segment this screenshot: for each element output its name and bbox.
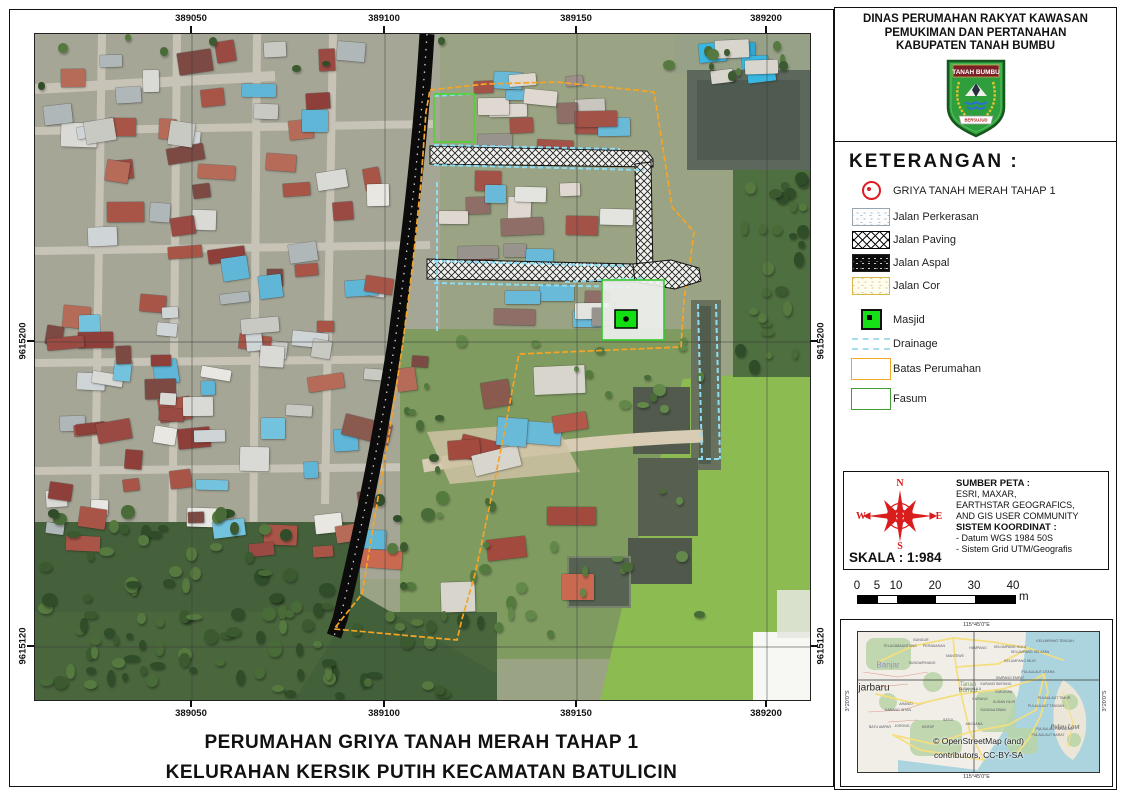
legend-item-aspal: Jalan Aspal — [849, 254, 1106, 272]
inset-place-label: MANTEWE — [946, 654, 964, 658]
inset-place-label: TELAGABAUNTUNG — [883, 644, 916, 648]
grid-tick — [575, 700, 577, 707]
legend: KETERANGAN : GRIYA TANAH MERAH TAHAP 1 J… — [835, 142, 1116, 410]
asphalt-road — [334, 34, 427, 636]
inset-place-label: KELUMPANG SELATAN — [1011, 650, 1049, 654]
masjid-marker — [615, 310, 637, 328]
legend-item-cor: Jalan Cor — [849, 277, 1106, 295]
legend-item-perkerasan: Jalan Perkerasan — [849, 208, 1106, 226]
inset-place-label: PULAULAUT UTARA — [1021, 670, 1054, 674]
inset-place-label: KUSAN HILIR — [993, 700, 1015, 704]
easting-label-top: 389100 — [368, 13, 400, 24]
aspal-swatch-icon — [852, 254, 890, 272]
legend-label: Fasum — [893, 393, 927, 405]
inset-place-label: KELUMPANG TENGAH — [1036, 639, 1073, 643]
scalebar-tick: 10 — [890, 580, 903, 592]
inset-place-label: BUNGUR — [913, 638, 928, 642]
perkerasan-swatch-icon — [852, 208, 890, 226]
easting-label-bottom: 389100 — [368, 708, 400, 719]
cor-swatch-icon — [852, 277, 890, 295]
easting-label-top: 389050 — [175, 13, 207, 24]
agency-title-line2: PEMUKIMAN DAN PERTANAHAN — [835, 27, 1116, 41]
legend-item-batas: Batas Perumahan — [849, 358, 1106, 380]
tanah-bumbu-logo: TANAH BUMBU BERSUJUD — [944, 56, 1008, 138]
koordinat-line: - Sistem Grid UTM/Geografis — [956, 544, 1106, 555]
sistem-koordinat-title: SISTEM KOORDINAT : — [956, 522, 1106, 533]
grid-tick — [27, 645, 34, 647]
map-layout-sheet: 389050 389100 389150 389200 389050 38910… — [0, 0, 1123, 793]
inset-place-label: JORONG — [895, 724, 910, 728]
legend-item-fasum: Fasum — [849, 388, 1106, 410]
sumber-line: EARTHSTAR GEOGRAFICS, — [956, 500, 1106, 511]
scalebar-tick: 30 — [968, 580, 981, 592]
inset-place-label: ARANIO — [899, 702, 912, 706]
grid-tick — [27, 340, 34, 342]
red-point-icon — [862, 181, 881, 200]
easting-label-top: 389150 — [560, 13, 592, 24]
compass-rose-icon: N S W E — [854, 476, 946, 550]
batas-swatch-icon — [851, 358, 891, 380]
map-overlay-features — [35, 34, 810, 700]
inset-place-label: SATUI — [943, 718, 953, 722]
legend-label: Jalan Perkerasan — [893, 211, 979, 223]
svg-text:BERSUJUD: BERSUJUD — [964, 117, 987, 122]
inset-place-label: KARANG INTAN — [885, 708, 911, 712]
inset-place-label: SUNGAIPINANG — [909, 661, 936, 665]
inset-place-label: BATU AMPAR — [869, 725, 891, 729]
inset-place-label: PULAULAUT TENGAH — [1028, 704, 1064, 708]
info-panel: DINAS PERUMAHAN RAKYAT KAWASAN PEMUKIMAN… — [834, 7, 1117, 790]
grid-tick — [190, 26, 192, 33]
drainage-swatch-icon — [852, 338, 890, 350]
northing-label-right: 9615120 — [816, 628, 827, 665]
grid-tick — [765, 26, 767, 33]
legend-label: Jalan Cor — [893, 280, 940, 292]
grid-tick — [575, 26, 577, 33]
legend-label: Jalan Aspal — [893, 257, 949, 269]
fasum-outlines — [434, 94, 664, 340]
svg-text:TANAH BUMBU: TANAH BUMBU — [952, 69, 1000, 76]
map-title-line2: KELURAHAN KERSIK PUTIH KECAMATAN BATULIC… — [10, 762, 833, 784]
legend-label: Jalan Paving — [893, 234, 956, 246]
grid-tick — [383, 700, 385, 707]
agency-title-line3: KABUPATEN TANAH BUMBU — [835, 40, 1116, 54]
svg-text:S: S — [897, 541, 903, 550]
source-info-box: N S W E — [843, 471, 1109, 570]
legend-item-masjid: Masjid — [849, 309, 1106, 330]
inset-place-label: SUNGAILOBAN — [980, 708, 1005, 712]
inset-place-label: PULAULAUT BARAT — [1032, 733, 1065, 737]
sumber-peta-title: SUMBER PETA : — [956, 478, 1106, 489]
grid-tick — [190, 700, 192, 707]
legend-label: Drainage — [893, 338, 938, 350]
koordinat-line: - Datum WGS 1984 50S — [956, 533, 1106, 544]
inset-place-label: SIMPANG EMPAT — [996, 676, 1024, 680]
legend-item-griya: GRIYA TANAH MERAH TAHAP 1 — [849, 181, 1106, 200]
map-sheet-panel: 389050 389100 389150 389200 389050 38910… — [9, 9, 834, 787]
grid-tick — [810, 340, 817, 342]
inset-coord-left: 3°20'0"S — [845, 690, 851, 711]
paving-swatch-icon — [852, 231, 890, 249]
scalebar-tick: 40 — [1007, 580, 1020, 592]
agency-header: DINAS PERUMAHAN RAKYAT KAWASAN PEMUKIMAN… — [835, 8, 1116, 142]
legend-item-paving: Jalan Paving — [849, 231, 1106, 249]
svg-text:E: E — [936, 511, 943, 522]
scalebar: 0 5 10 20 30 40 m — [857, 580, 1107, 612]
inset-place-label: PERAMASAN — [923, 644, 945, 648]
inset-place-label: Banjar — [876, 661, 899, 670]
grid-tick — [765, 700, 767, 707]
legend-item-drainage: Drainage — [849, 338, 1106, 350]
svg-text:N: N — [896, 478, 904, 489]
inset-place-label: KELUMPANG HULU — [994, 645, 1026, 649]
northing-label-right: 9615200 — [816, 323, 827, 360]
scalebar-tick: 20 — [929, 580, 942, 592]
masjid-swatch-icon — [861, 309, 882, 330]
map-title-line1: PERUMAHAN GRIYA TANAH MERAH TAHAP 1 — [10, 732, 833, 754]
legend-title: KETERANGAN : — [849, 151, 1106, 173]
inset-place-label: KUSAN HULU — [959, 687, 982, 691]
grid-tick — [383, 26, 385, 33]
legend-label: Masjid — [893, 314, 925, 326]
inset-locator-box: 115°45'0"E 115°45'0"E 3°20'0"S 3°20'0"S — [840, 619, 1113, 787]
sumber-line: ESRI, MAXAR, — [956, 489, 1106, 500]
inset-place-label: KARANG BINTANG — [980, 682, 1011, 686]
inset-coord-right: 3°20'0"S — [1102, 690, 1108, 711]
inset-coord-top: 115°45'0"E — [963, 622, 990, 628]
aerial-map — [34, 33, 811, 701]
grid-tick — [810, 645, 817, 647]
inset-place-label: KINTAP — [922, 725, 934, 729]
easting-label-bottom: 389050 — [175, 708, 207, 719]
easting-label-bottom: 389150 — [560, 708, 592, 719]
scale-text: SKALA : 1:984 — [849, 550, 942, 565]
easting-label-top: 389200 — [750, 13, 782, 24]
inset-place-label: PULAULAUT SELATAN — [1036, 727, 1073, 731]
sumber-line: AND GIS USER COMMUNITY — [956, 511, 1106, 522]
inset-osm-map: BanjarjarbaruTanah BumbuPulau LautBUNGUR… — [857, 631, 1100, 773]
inset-place-label: KUKUSAN — [996, 690, 1013, 694]
scalebar-unit: m — [1019, 591, 1029, 603]
osm-attribution-line2: contributors, CC-BY-SA — [934, 750, 1023, 760]
map-sources: SUMBER PETA : ESRI, MAXAR, EARTHSTAR GEO… — [956, 478, 1106, 555]
fasum-swatch-icon — [851, 388, 891, 410]
scalebar-tick: 0 — [854, 580, 860, 592]
inset-place-label: PULAULAUT TIMUR — [1038, 696, 1071, 700]
legend-label: GRIYA TANAH MERAH TAHAP 1 — [893, 185, 1056, 197]
osm-attribution-line1: © OpenStreetMap (and) — [933, 736, 1024, 746]
agency-title-line1: DINAS PERUMAHAN RAKYAT KAWASAN — [835, 13, 1116, 27]
legend-label: Batas Perumahan — [893, 363, 981, 375]
inset-place-label: HAMPANG — [969, 646, 986, 650]
easting-label-bottom: 389200 — [750, 708, 782, 719]
inset-place-label: ANGSANA — [965, 722, 982, 726]
scalebar-tick: 5 — [874, 580, 880, 592]
inset-coord-bottom: 115°45'0"E — [963, 774, 990, 780]
inset-place-label: KURANJI — [973, 697, 988, 701]
inset-place-label: jarbaru — [858, 683, 889, 694]
inset-place-label: KELUMPANG HILIR — [1004, 659, 1036, 663]
scalebar-bar — [857, 595, 1016, 604]
